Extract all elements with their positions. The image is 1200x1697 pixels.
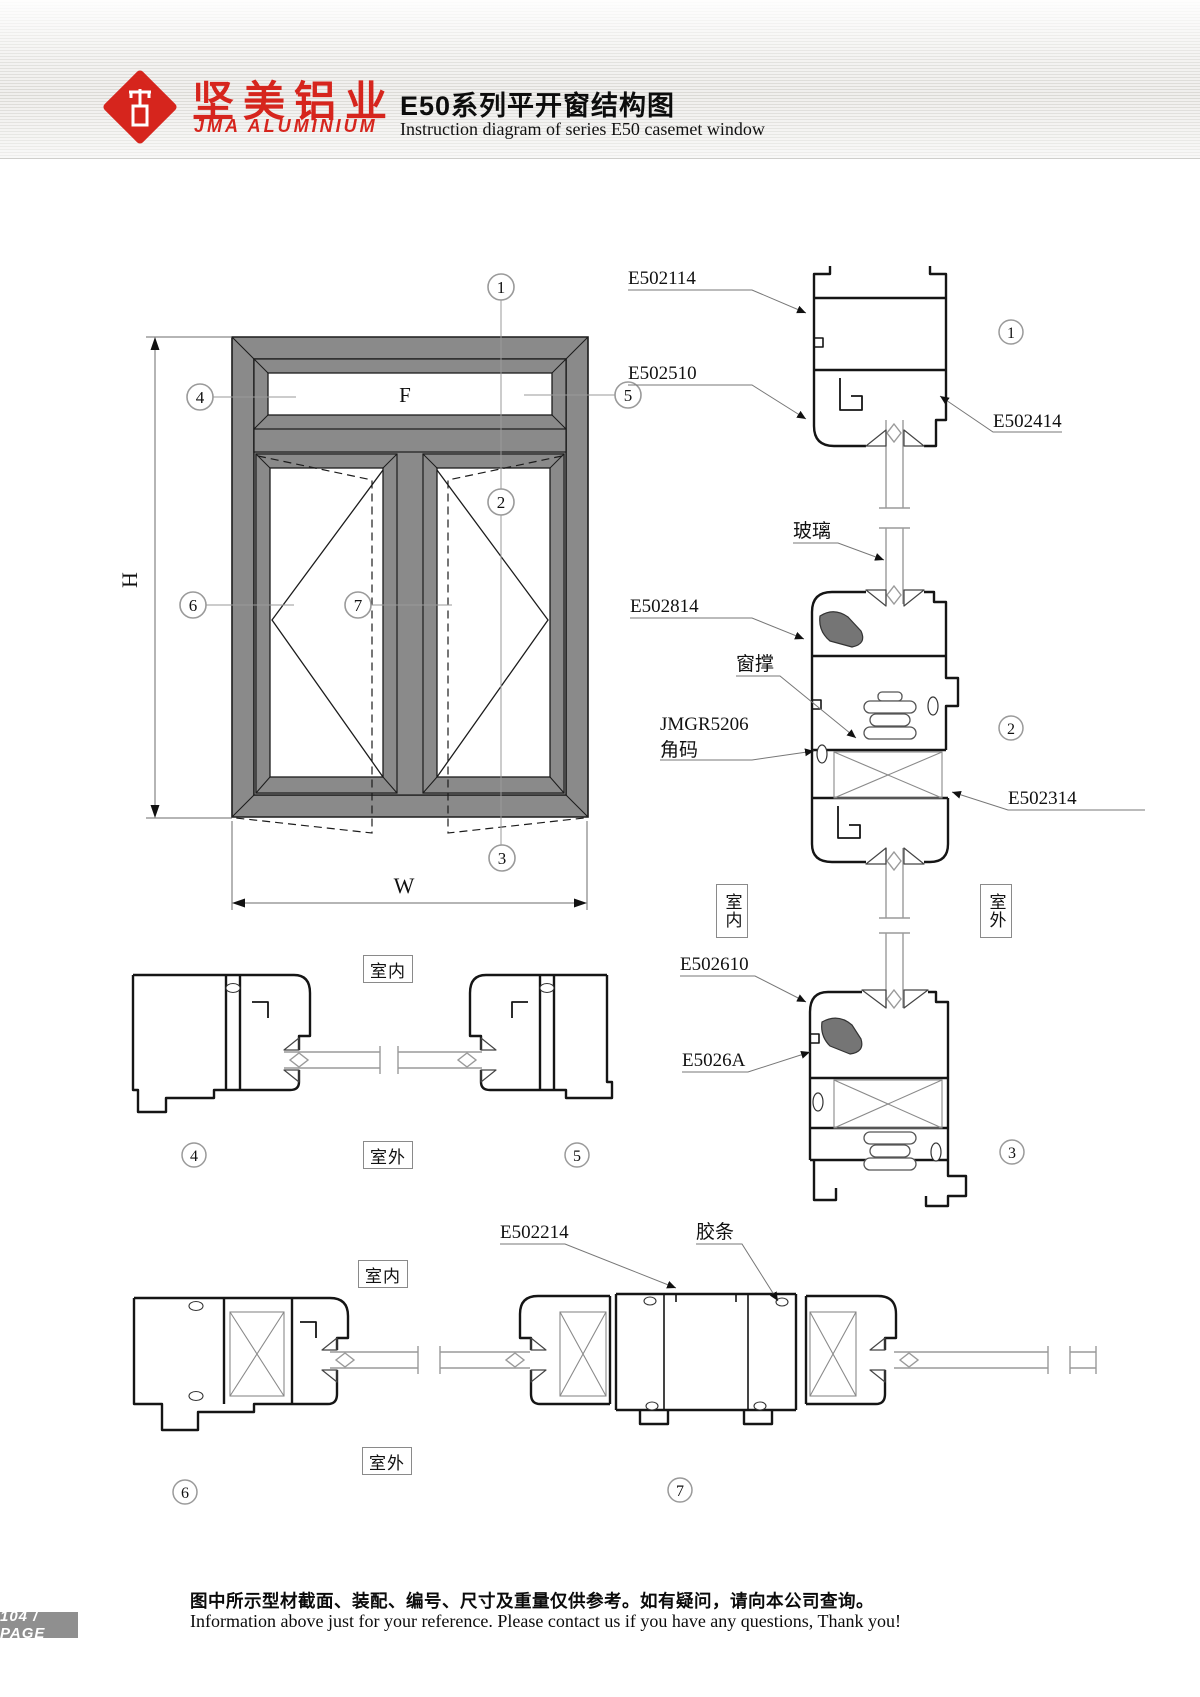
svg-text:5: 5 (573, 1148, 581, 1165)
svg-text:5: 5 (624, 386, 633, 405)
svg-text:7: 7 (676, 1483, 684, 1500)
footer-note-cn: 图中所示型材截面、装配、编号、尺寸及重量仅供参考。如有疑问，请向本公司查询。 (190, 1588, 874, 1613)
dimension-h (146, 337, 232, 818)
label-e502610: E502610 (680, 954, 749, 975)
svg-text:3: 3 (498, 849, 507, 868)
indoor-label: 室内 (358, 1260, 408, 1288)
outdoor-label: 室外 (362, 1447, 412, 1475)
section-callout-3: 3 (1000, 1140, 1024, 1164)
right-sash-pane (437, 468, 550, 777)
section-callout-7: 7 (668, 1478, 692, 1502)
label-glass: 玻璃 (793, 520, 831, 542)
callout-4: 4 (187, 384, 213, 410)
corner-cleat-box (834, 1080, 942, 1128)
section-3-profile (810, 990, 966, 1206)
left-sash-pane (270, 468, 383, 777)
callout-2: 2 (488, 489, 514, 515)
section-callout-1: 1 (999, 320, 1023, 344)
dim-w-label: W (394, 873, 415, 898)
section-callout-6: 6 (173, 1480, 197, 1504)
label-e502114: E502114 (628, 268, 696, 289)
label-corner-cleat: 角码 (660, 739, 698, 761)
label-e502814: E502814 (630, 596, 699, 617)
section-3-hardware (813, 1080, 942, 1170)
svg-text:7: 7 (354, 596, 363, 615)
svg-text:2: 2 (1007, 721, 1015, 738)
technical-drawing: H W F 1 4 5 2 6 7 3 (0, 0, 1200, 1697)
callout-6: 6 (180, 592, 206, 618)
label-jmgr5206: JMGR5206 (660, 714, 749, 735)
label-e502314: E502314 (1008, 788, 1077, 809)
gasket-shape (822, 1018, 862, 1054)
section-7-profile (520, 1294, 896, 1424)
svg-text:3: 3 (1008, 1145, 1016, 1162)
window-stay-spring (864, 1132, 916, 1170)
dim-h-label: H (117, 572, 142, 588)
callout-5: 5 (615, 382, 641, 408)
section-4-profile (133, 975, 310, 1112)
svg-text:2: 2 (497, 493, 506, 512)
catalog-page: 坚美铝业 JMA ALUMINIUM E50系列平开窗结构图 Instructi… (0, 0, 1200, 1697)
footer-note-en: Information above just for your referenc… (190, 1611, 901, 1632)
rubber-gasket (776, 1298, 788, 1306)
glass-horizontal-67 (330, 1346, 1096, 1374)
corner-cleat-box (834, 752, 942, 798)
label-e502510: E502510 (628, 363, 697, 384)
svg-text:1: 1 (497, 278, 506, 297)
callout-7: 7 (345, 592, 371, 618)
outdoor-label: 室外 (363, 1141, 413, 1169)
section-5-profile (470, 975, 612, 1098)
section-callout-5: 5 (565, 1143, 589, 1167)
label-e502214: E502214 (500, 1222, 569, 1243)
page-number-badge: 104 / PAGE (0, 1612, 78, 1638)
glass-horizontal-45 (284, 1046, 482, 1074)
label-window-stay: 窗撑 (736, 653, 774, 675)
section-7-hardware (560, 1297, 856, 1410)
indoor-label: 室内 (363, 955, 413, 983)
svg-text:6: 6 (181, 1485, 189, 1502)
section-6-hardware (189, 1302, 284, 1401)
gasket-shape (820, 612, 863, 647)
fixed-pane-label: F (399, 383, 411, 407)
indoor-label: 室内 (716, 884, 748, 938)
callout-3: 3 (489, 845, 515, 871)
label-rubber-gasket: 胶条 (696, 1221, 734, 1243)
window-stay-spring (864, 692, 916, 739)
section-callout-2: 2 (999, 716, 1023, 740)
label-e5026a: E5026A (682, 1050, 746, 1071)
label-e502414: E502414 (993, 411, 1062, 432)
outdoor-label: 室外 (980, 884, 1012, 938)
callout-1: 1 (488, 274, 514, 300)
svg-text:4: 4 (196, 388, 205, 407)
section-6-profile (134, 1298, 348, 1430)
section-1-profile (814, 266, 946, 446)
section-callout-4: 4 (182, 1143, 206, 1167)
svg-text:6: 6 (189, 596, 198, 615)
svg-text:4: 4 (190, 1148, 198, 1165)
section-2-hardware (817, 692, 942, 798)
svg-text:1: 1 (1007, 325, 1015, 342)
